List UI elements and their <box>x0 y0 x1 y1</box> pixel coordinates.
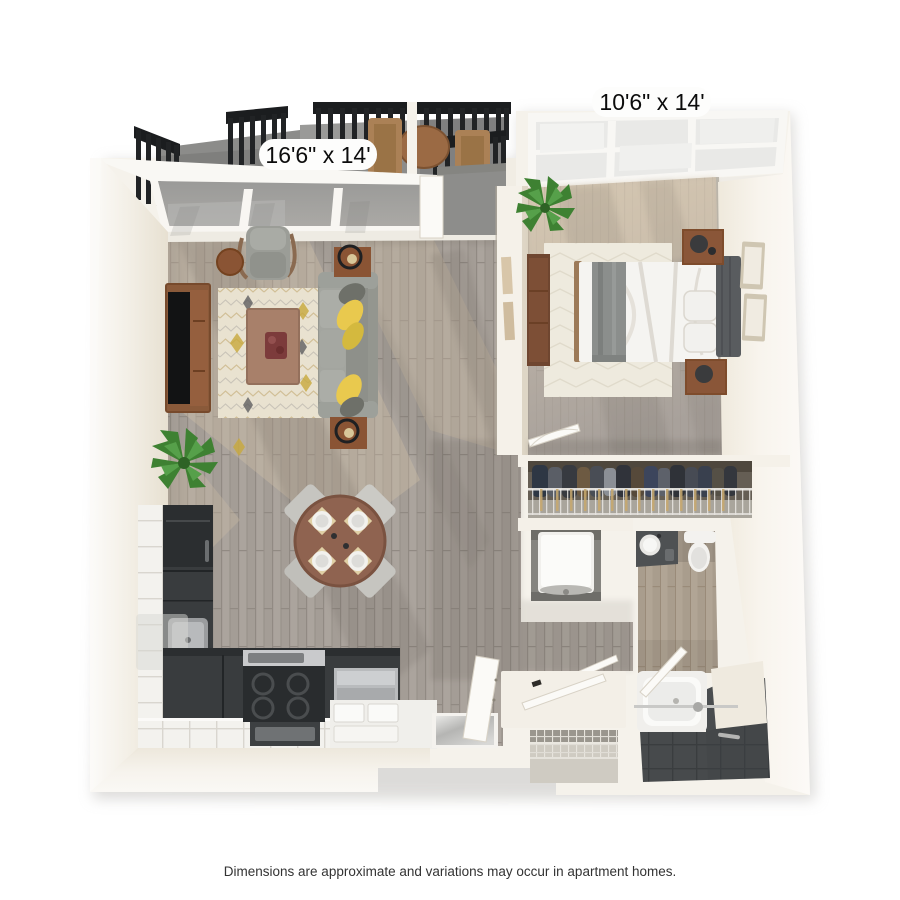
svg-text:16'6" x 14': 16'6" x 14' <box>265 142 370 168</box>
svg-text:Dimensions are approximate and: Dimensions are approximate and variation… <box>224 864 676 879</box>
svg-text:10'6" x 14': 10'6" x 14' <box>599 89 704 115</box>
